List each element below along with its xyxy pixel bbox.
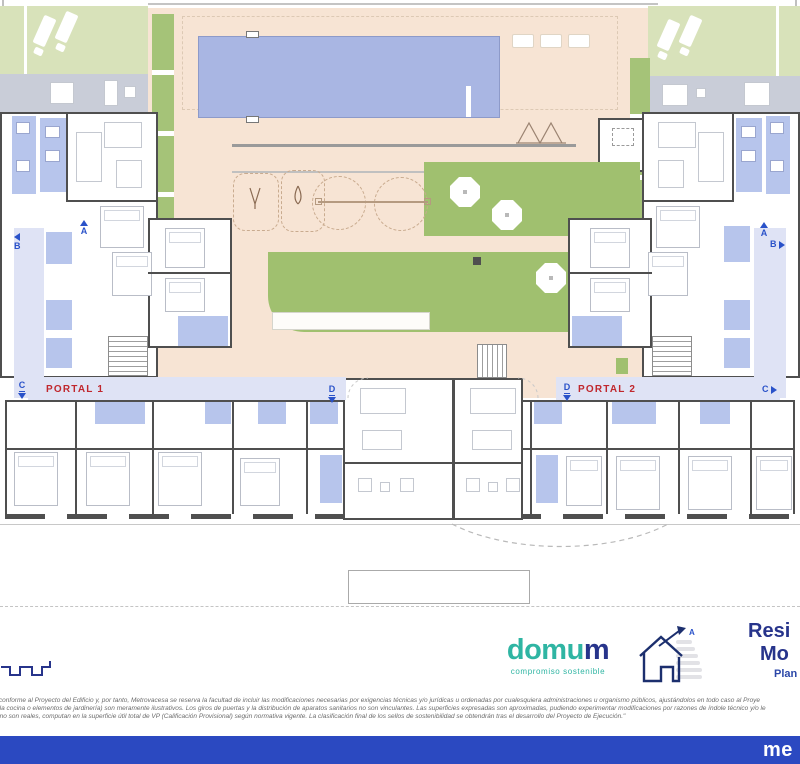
disclaimer-line: zas reflejadas en plano son reales, comp…	[0, 713, 625, 720]
house-body	[644, 653, 679, 681]
site-key-outline	[0, 658, 54, 684]
domum-wordmark: domu	[507, 634, 584, 666]
energy-rating-letter: A	[689, 628, 695, 637]
door-swing-arc	[348, 378, 368, 398]
disclaimer-line: a ha sido elaborado conforme al Proyecto…	[0, 697, 760, 704]
disclaimer-line: cluido en la zona de la cocina o element…	[0, 705, 766, 712]
energy-bar	[676, 640, 692, 644]
metrovacesa-wordmark: me	[763, 739, 793, 762]
plan-linework	[0, 0, 800, 620]
house-roof	[640, 637, 682, 656]
driveway-arc	[452, 524, 668, 547]
energy-arrowhead	[677, 626, 686, 635]
domum-tagline: compromiso sostenible	[478, 667, 638, 676]
door-swing-arc	[518, 378, 538, 398]
project-title-line3: Plan	[774, 668, 797, 680]
metrovacesa-brand-bar: me	[0, 736, 800, 764]
energy-house-icon: A	[628, 624, 702, 690]
floor-plan-sheet: PORTAL 1 PORTAL 2 A B A B C D D C	[0, 0, 800, 764]
energy-bar	[676, 647, 695, 651]
domum-logo: domum compromiso sostenible	[478, 636, 638, 676]
domum-wordmark-accent: m	[584, 634, 609, 666]
project-title-line2: Mo	[760, 643, 789, 666]
project-title-line1: Resi	[748, 620, 790, 643]
trellis-icon	[516, 123, 566, 143]
play-equipment-icon	[250, 186, 301, 209]
